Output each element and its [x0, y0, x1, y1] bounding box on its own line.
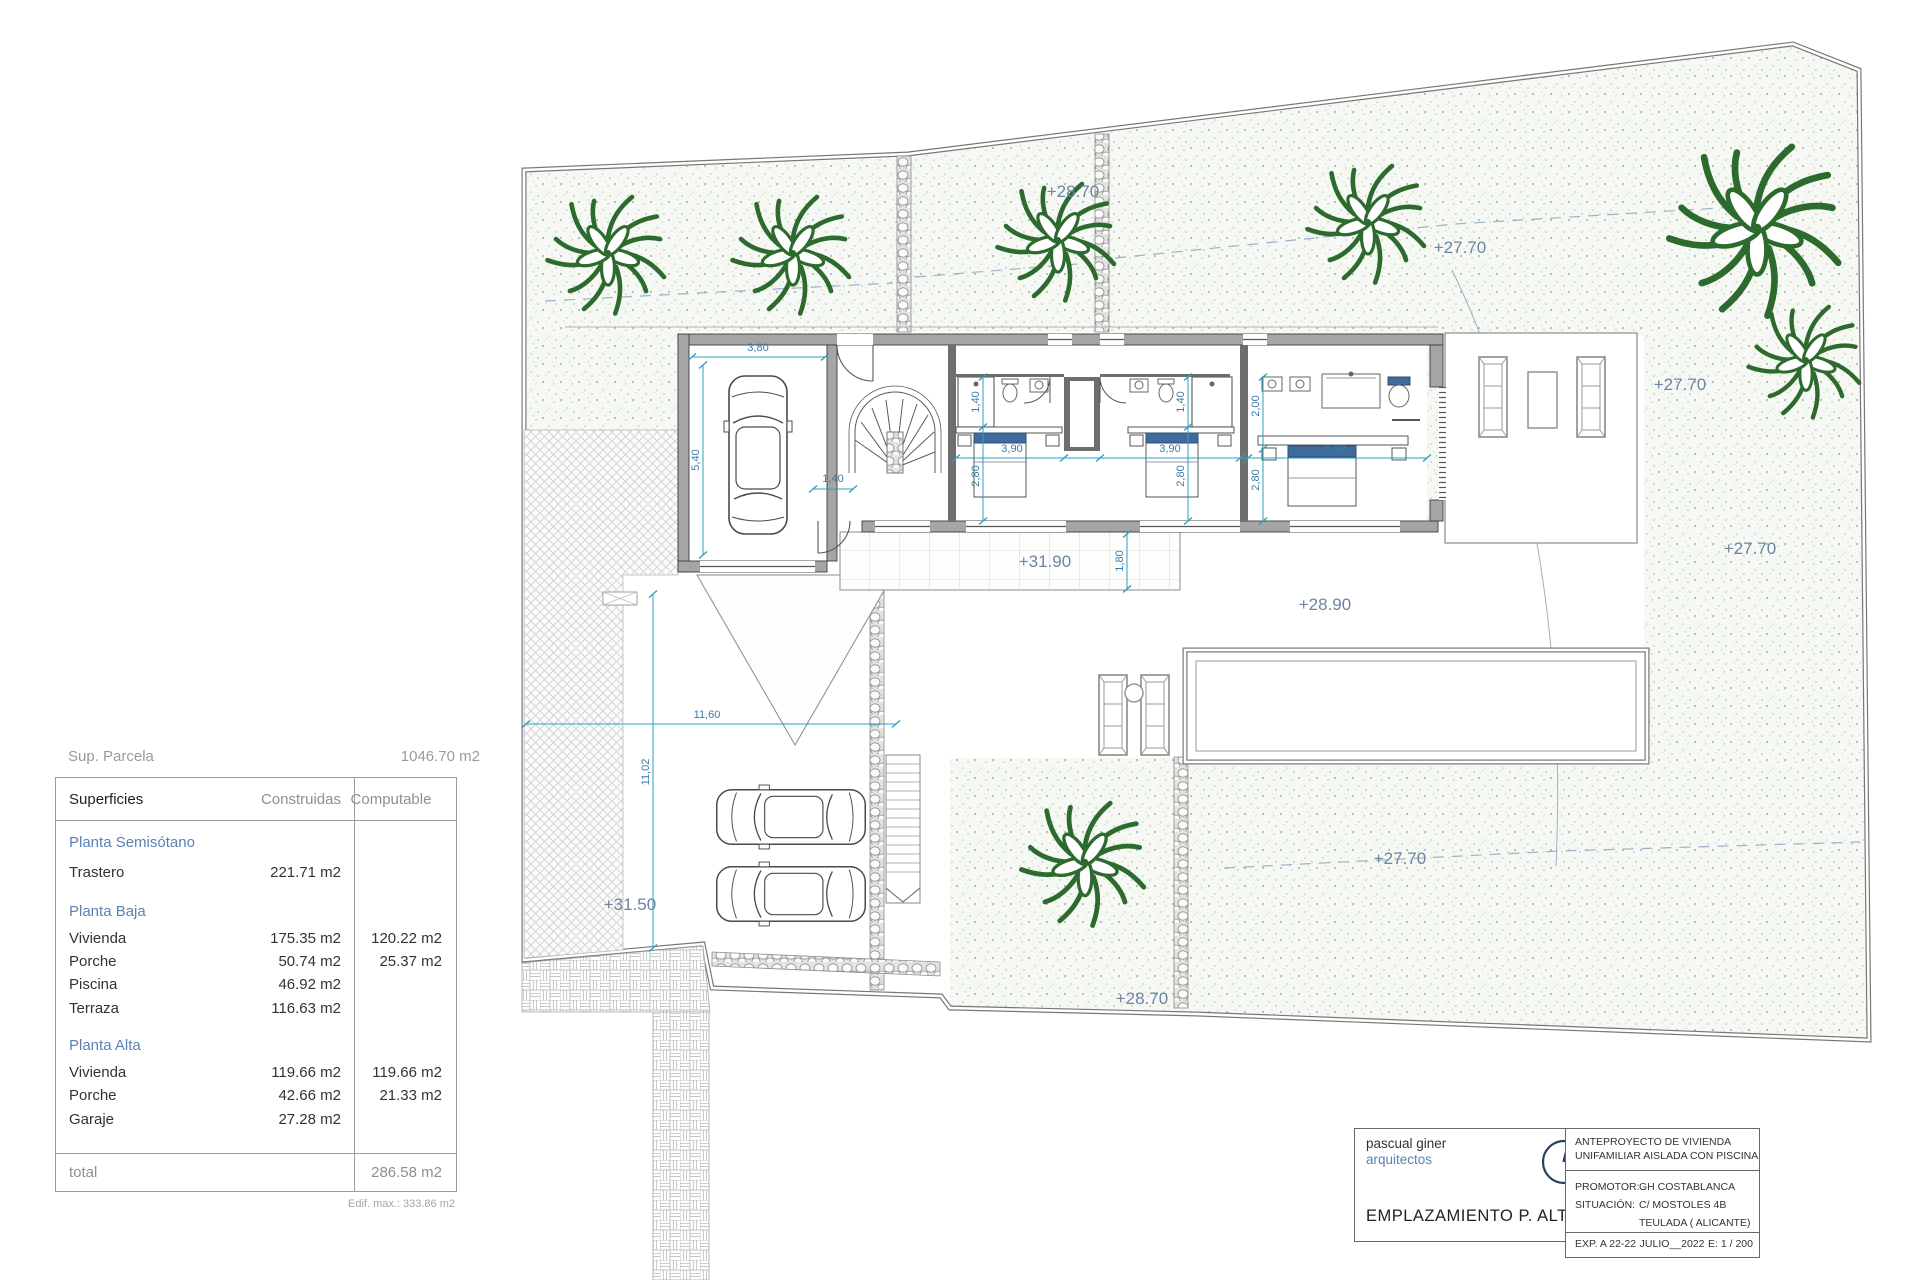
dim-label: 2,80 — [970, 465, 982, 486]
table-row: Porche 42.66 m2 21.33 m2 — [56, 1084, 456, 1107]
promotor-label: PROMOTOR: — [1575, 1178, 1639, 1196]
level-label: +31.50 — [604, 895, 656, 914]
level-label: +27.70 — [1434, 238, 1486, 257]
sheet-scale: E: 1 / 200 — [1708, 1238, 1753, 1257]
level-label: +27.70 — [1724, 539, 1776, 558]
table-row: Porche 50.74 m2 25.37 m2 — [56, 950, 456, 973]
dim-label: 11,60 — [694, 709, 721, 721]
section-title: Planta Alta — [56, 1030, 456, 1061]
table-row: Vivienda 119.66 m2 119.66 m2 — [56, 1061, 456, 1084]
promotor-value: GH COSTABLANCA — [1639, 1178, 1735, 1196]
situacion-label: SITUACIÓN: — [1575, 1196, 1639, 1214]
garage-ramp — [603, 575, 893, 745]
table-row: Piscina 46.92 m2 — [56, 973, 456, 996]
dim-label: 6,30 — [1324, 443, 1345, 455]
dim-label: 5,40 — [690, 449, 702, 470]
pool — [1185, 650, 1647, 762]
total-label: total — [56, 1164, 226, 1181]
expedient-number: EXP. A 22-22 — [1575, 1238, 1636, 1257]
level-label: +28.90 — [1299, 595, 1351, 614]
dim-label: 2,00 — [1250, 395, 1262, 416]
header-computable: Computable — [341, 791, 441, 808]
dim-label: 3,80 — [747, 342, 768, 354]
section-title: Planta Baja — [56, 895, 456, 927]
project-info: PROMOTOR:GH COSTABLANCA SITUACIÓN:C/ MOS… — [1566, 1171, 1759, 1233]
dim-label: 3,90 — [1159, 443, 1180, 455]
firm-subtitle: arquitectos — [1366, 1152, 1446, 1168]
firm-name: pascual giner — [1366, 1136, 1446, 1152]
level-label: +31.90 — [1019, 552, 1071, 571]
level-label: +28.70 — [1047, 182, 1099, 201]
dim-label: 1,40 — [1175, 391, 1187, 412]
table-row: Terraza 116.63 m2 — [56, 996, 456, 1020]
parcel-value: 1046.70 m2 — [401, 748, 480, 765]
dim-label: 2,80 — [1250, 469, 1262, 490]
header-construidas: Construidas — [226, 791, 341, 808]
upper-terrace — [840, 532, 1180, 590]
total-row: total 286.58 m2 — [56, 1153, 456, 1191]
title-block-right: ANTEPROYECTO DE VIVIENDA UNIFAMILIAR AIS… — [1565, 1128, 1760, 1258]
table-column-divider — [354, 778, 355, 1191]
situacion-value: C/ MOSTOLES 4B — [1639, 1196, 1726, 1214]
driveway-crosshatch — [524, 430, 678, 958]
level-label: +27.70 — [1654, 375, 1706, 394]
lounge-platform — [1445, 333, 1637, 543]
dim-label: 1,80 — [1114, 550, 1126, 571]
level-label: +28.70 — [1116, 989, 1168, 1008]
garden-stair — [886, 755, 920, 903]
sheet-date: JULIO__2022 — [1640, 1238, 1705, 1257]
situacion-value2: TEULADA ( ALICANTE) — [1639, 1214, 1750, 1232]
side-table-icon — [1528, 372, 1557, 428]
dim-label: 1,40 — [970, 391, 982, 412]
dim-label: 3,90 — [1001, 443, 1022, 455]
title-block-left: pascual giner arquitectos EMPLAZAMIENTO … — [1354, 1128, 1567, 1242]
table-row: Garaje 27.28 m2 — [56, 1107, 456, 1131]
section-title: Planta Semisótano — [56, 827, 456, 857]
table-row: Vivienda 175.35 m2 120.22 m2 — [56, 927, 456, 950]
areas-table-box: Superficies Construidas Computable Plant… — [55, 777, 457, 1192]
sheet-meta: EXP. A 22-22 JULIO__2022 E: 1 / 200 — [1566, 1233, 1759, 1257]
project-title: ANTEPROYECTO DE VIVIENDA UNIFAMILIAR AIS… — [1566, 1129, 1759, 1171]
parcel-area-line: Sup. Parcela 1046.70 m2 — [55, 743, 488, 769]
dim-label: 11,02 — [640, 759, 652, 786]
table-row: Trastero 221.71 m2 — [56, 857, 456, 887]
level-label: +27.70 — [1374, 849, 1426, 868]
round-table-icon — [1125, 684, 1143, 702]
sheet-title: EMPLAZAMIENTO P. ALTA — [1366, 1207, 1578, 1226]
glass-rail-east — [1439, 387, 1446, 500]
table-header: Superficies Construidas Computable — [56, 778, 456, 821]
driveway-cars — [717, 785, 866, 926]
dim-label: 2,80 — [1175, 465, 1187, 486]
paved-path — [522, 946, 710, 1280]
dim-label: 1,40 — [822, 473, 843, 485]
areas-table: Sup. Parcela 1046.70 m2 Superficies Cons… — [55, 743, 488, 1210]
drawing-sheet: 3,80 5,40 1,40 3,90 1,40 2,80 3,90 1,40 … — [0, 0, 1920, 1280]
parcel-label: Sup. Parcela — [68, 748, 154, 765]
total-value: 286.58 m2 — [341, 1164, 449, 1181]
max-buildable-note: Edif. max.: 333.86 m2 — [55, 1198, 455, 1210]
header-superficies: Superficies — [56, 791, 226, 808]
